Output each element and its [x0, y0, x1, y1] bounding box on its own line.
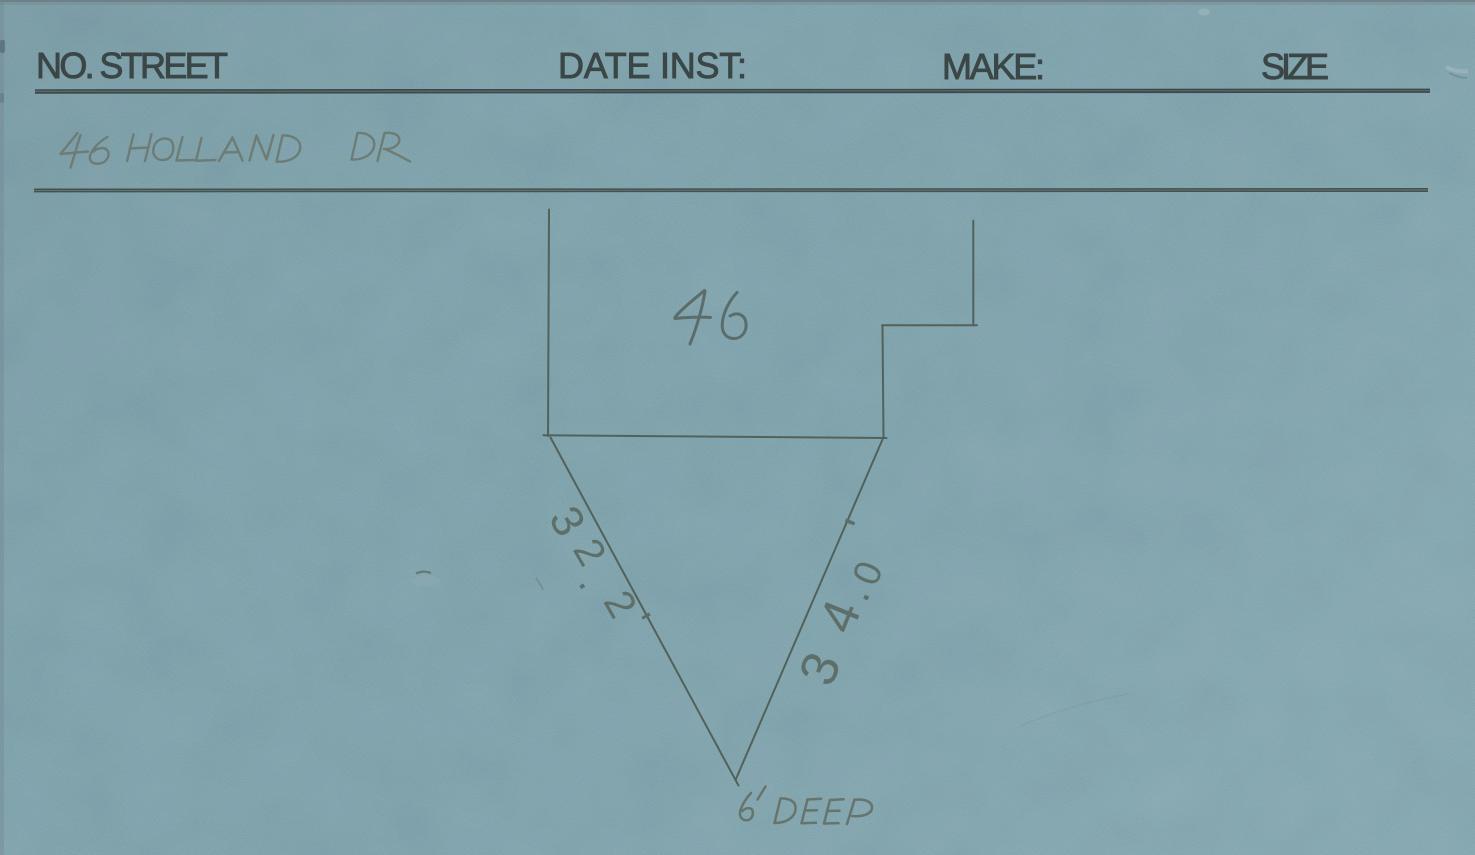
svg-text:DATE INST:: DATE INST: [558, 45, 748, 86]
svg-text:NO. STREET: NO. STREET [36, 45, 229, 86]
svg-text:MAKE:: MAKE: [942, 46, 1046, 87]
svg-text:SIZE: SIZE [1261, 46, 1330, 87]
